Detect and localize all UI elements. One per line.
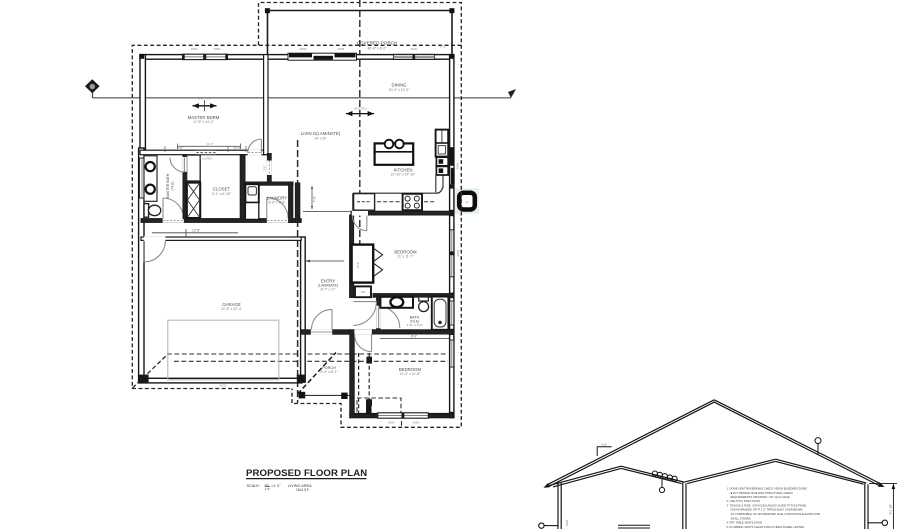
svg-text:5'-0": 5'-0" — [177, 146, 183, 150]
svg-text:4. PAT. TABLE VENTILATION: 4. PAT. TABLE VENTILATION — [727, 521, 762, 525]
svg-text:6068: 6068 — [338, 47, 345, 51]
svg-text:6'-7": 6'-7" — [290, 235, 296, 239]
svg-text:11' x 11'-7": 11' x 11'-7" — [397, 255, 414, 259]
svg-text:3050: 3050 — [191, 47, 198, 51]
svg-text:1. DOME VENT REVERSIBLE CHECK: 1. DOME VENT REVERSIBLE CHECK VISION BLE… — [727, 487, 807, 491]
svg-text:4'-11" x 8'-9": 4'-11" x 8'-9" — [406, 323, 423, 327]
svg-text:4-0 OPEN: 4-0 OPEN — [200, 157, 213, 161]
svg-text:5'-4" x 8'-1": 5'-4" x 8'-1" — [320, 370, 338, 374]
svg-text:2'-0": 2'-0" — [440, 45, 446, 49]
svg-text:6'-1" x 6'-10": 6'-1" x 6'-10" — [212, 192, 232, 196]
svg-text:5'-6" x 6'-5": 5'-6" x 6'-5" — [268, 200, 286, 204]
svg-text:17'-8" x 14'-2": 17'-8" x 14'-2" — [193, 120, 215, 124]
svg-text:8'-1 1/8": 8'-1 1/8" — [888, 504, 892, 515]
svg-text:8'-0": 8'-0" — [411, 334, 417, 338]
svg-text:SHALL STONES: SHALL STONES — [731, 516, 751, 520]
svg-text:46'-8" x 6'-2": 46'-8" x 6'-2" — [368, 46, 388, 50]
svg-text:SCALE:: SCALE: — [247, 484, 261, 488]
svg-text:6068: 6068 — [300, 47, 307, 51]
svg-text:6'-7" x 17': 6'-7" x 17' — [321, 288, 336, 292]
svg-text:COVERED PORCH: COVERED PORCH — [357, 41, 398, 46]
svg-text:1'-0": 1'-0" — [265, 487, 271, 491]
svg-text:11'-0": 11'-0" — [207, 142, 214, 146]
svg-text:5040: 5040 — [411, 47, 418, 51]
svg-text:22'-8" x 22'-4": 22'-8" x 22'-4" — [221, 307, 243, 311]
svg-text:2'-6": 2'-6" — [263, 165, 267, 171]
svg-text:VAULTED: VAULTED — [354, 107, 367, 111]
svg-text:CLO: CLO — [356, 261, 360, 268]
svg-text:10'-10" x 14'-10": 10'-10" x 14'-10" — [391, 173, 416, 177]
svg-text:■ PCT WINDER OR ■ VINE STRUCTU: ■ PCT WINDER OR ■ VINE STRUCTURAL CHECK — [731, 491, 794, 495]
svg-text:AC: AC — [465, 200, 469, 204]
svg-text:12'-0": 12'-0" — [233, 146, 241, 150]
svg-text:3050: 3050 — [388, 420, 395, 424]
svg-text:14' x 20': 14' x 20' — [314, 136, 327, 140]
svg-text:REQUIREMENTS PROVIDED □ BY 10: REQUIREMENTS PROVIDED □ BY 10-11 GAGE — [731, 495, 790, 499]
svg-text:1614 S.F.: 1614 S.F. — [296, 488, 310, 492]
svg-text:11'-4" x 11'-8": 11'-4" x 11'-8" — [400, 372, 421, 376]
svg-text:PROPOSED FLOOR PLAN: PROPOSED FLOOR PLAN — [246, 468, 367, 479]
svg-text:3050: 3050 — [456, 249, 460, 256]
svg-text:3 1/2": 3 1/2" — [565, 519, 569, 526]
svg-text:NON-EXPANDED OR "P 1 S" TRIPLE: NON-EXPANDED OR "P 1 S" TRIPLE-BUILT OVE… — [731, 508, 804, 512]
svg-text:MASTER BATH: MASTER BATH — [166, 173, 170, 198]
svg-text:3050: 3050 — [214, 47, 221, 51]
svg-text:3050: 3050 — [413, 420, 420, 424]
svg-text:2'-0" TYP: 2'-0" TYP — [198, 96, 210, 100]
svg-text:AS COMPATIBLE. W/ 100 REMOVED: AS COMPATIBLE. W/ 100 REMOVED SHALL PROV… — [731, 512, 820, 516]
svg-text:6068: 6068 — [456, 162, 460, 169]
svg-text:LIN: LIN — [361, 290, 365, 294]
svg-text:4 12: 4 12 — [601, 443, 607, 447]
svg-text:(TILE): (TILE) — [171, 182, 175, 191]
svg-text:9070: 9070 — [220, 384, 227, 388]
svg-text:7'-0": 7'-0" — [313, 196, 317, 202]
svg-text:12'-8": 12'-8" — [192, 229, 200, 233]
svg-text:3. TONGUE & RIDE. USP AS BALA: 3. TONGUE & RIDE. USP AS BALANCES GUIDE … — [727, 503, 808, 507]
svg-text:=1' 0": =1' 0" — [271, 484, 281, 488]
svg-text:10'-4" x 10'-0": 10'-4" x 10'-0" — [389, 88, 411, 92]
svg-text:5. PLUMBING VENTS CLEAR STRUC: 5. PLUMBING VENTS CLEAR STRUCTURES DOWEL… — [727, 525, 804, 529]
svg-text:2. USE ATTIC INSULATION: 2. USE ATTIC INSULATION — [727, 499, 760, 503]
